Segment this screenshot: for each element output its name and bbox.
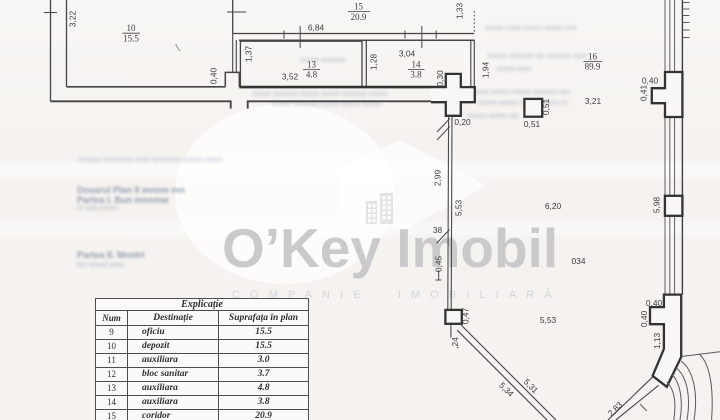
svg-text:3,04: 3,04 [399, 49, 416, 59]
svg-text:38: 38 [433, 225, 443, 235]
svg-text:0,45: 0,45 [434, 256, 444, 273]
svg-text:2,99: 2,99 [433, 170, 443, 187]
svg-text:0,51: 0,51 [541, 99, 551, 116]
svg-text:5,34: 5,34 [497, 380, 516, 399]
svg-text:6,20: 6,20 [545, 201, 562, 211]
svg-text:0,30: 0,30 [435, 70, 445, 87]
svg-text:6,84: 6,84 [308, 23, 325, 33]
svg-text:034: 034 [572, 256, 586, 266]
svg-text:1,28: 1,28 [369, 54, 379, 71]
svg-text:14: 14 [412, 60, 422, 70]
svg-text:1,94: 1,94 [481, 62, 491, 79]
svg-text:16: 16 [588, 52, 598, 62]
svg-text:4.8: 4.8 [306, 70, 318, 80]
svg-text:89.9: 89.9 [585, 62, 601, 72]
svg-text:0,51: 0,51 [524, 119, 541, 129]
svg-text:0,47: 0,47 [461, 308, 471, 325]
svg-text:15: 15 [354, 2, 364, 12]
svg-text:5,98: 5,98 [652, 197, 662, 214]
svg-text:3,21: 3,21 [585, 96, 602, 106]
svg-text:10: 10 [127, 23, 137, 33]
svg-text:5,31: 5,31 [522, 377, 541, 396]
svg-text:13: 13 [307, 60, 317, 70]
svg-text:20.9: 20.9 [351, 12, 367, 22]
svg-text:1,37: 1,37 [244, 46, 254, 63]
svg-text:15.5: 15.5 [123, 34, 139, 44]
svg-text:0,40: 0,40 [646, 298, 663, 308]
svg-text:0,41: 0,41 [639, 85, 649, 102]
svg-text:,24: ,24 [450, 337, 460, 349]
svg-text:1,13: 1,13 [652, 333, 662, 350]
svg-text:0,40: 0,40 [639, 311, 649, 328]
svg-text:0,20: 0,20 [454, 117, 471, 127]
svg-text:3,52: 3,52 [282, 72, 299, 82]
svg-text:5,53: 5,53 [540, 315, 557, 325]
svg-text:0,40: 0,40 [209, 68, 219, 85]
svg-text:3.8: 3.8 [410, 70, 422, 80]
svg-text:0,40: 0,40 [642, 76, 659, 86]
svg-text:3,22: 3,22 [68, 11, 78, 28]
svg-text:1,33: 1,33 [455, 3, 465, 20]
svg-text:5,53: 5,53 [454, 200, 464, 217]
